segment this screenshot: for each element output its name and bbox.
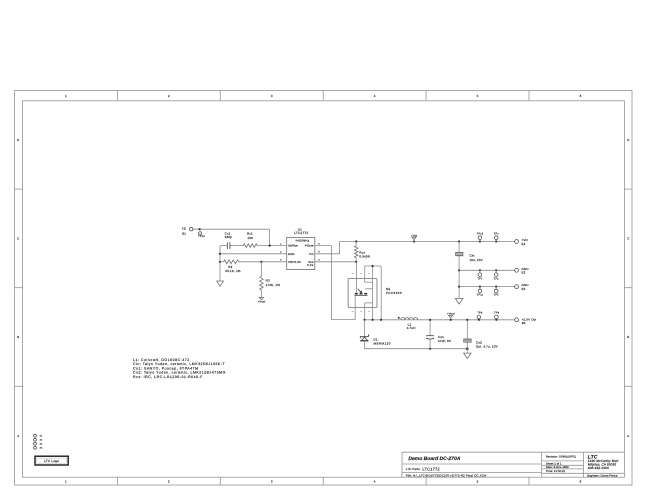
svg-text:TP11: TP11 (477, 294, 484, 297)
svg-text:Vin: Vin (309, 252, 314, 256)
svg-text:TP5: TP5 (494, 294, 500, 297)
svg-text:TP13: TP13 (477, 233, 484, 236)
svg-text:2: 2 (168, 479, 170, 483)
svg-text:TP9: TP9 (477, 312, 483, 315)
svg-text:TP2: TP2 (494, 277, 500, 280)
svg-text:408-432-1900: 408-432-1900 (588, 466, 609, 470)
svg-text:A: A (17, 434, 19, 438)
svg-text:2: 2 (368, 333, 369, 336)
svg-text:10K: 10K (247, 236, 253, 240)
svg-text:LTC Logo: LTC Logo (44, 459, 59, 463)
svg-text:A: A (627, 434, 629, 438)
svg-text:0.1V: 0.1V (307, 263, 313, 267)
svg-text:Ith/Run: Ith/Run (288, 244, 299, 248)
svg-text:FDC638P: FDC638P (386, 291, 402, 295)
svg-text:E4: E4 (522, 242, 526, 246)
svg-text:10u, 10V: 10u, 10V (469, 258, 482, 262)
svg-text:1: 1 (65, 479, 67, 483)
svg-text:PGate: PGate (305, 244, 314, 248)
svg-text:SD: SD (182, 227, 186, 231)
svg-text:0.040R: 0.040R (359, 254, 370, 258)
svg-text:3: 3 (271, 479, 273, 483)
svg-text:File: H:\_LTC\DCs\772\DC270-r: File: H:\_LTC\DCs\772\DC270-r2\772-R2 Fi… (406, 473, 487, 477)
svg-text:5: 5 (477, 479, 479, 483)
svg-text:f=550kHz: f=550kHz (296, 238, 310, 242)
svg-text:Rc1: Rc1 (247, 231, 253, 235)
svg-text:Vfb=0.8V: Vfb=0.8V (288, 260, 301, 264)
svg-text:6: 6 (580, 94, 582, 98)
svg-text:TP10: TP10 (198, 235, 205, 238)
svg-text:93.1K, 1%: 93.1K, 1% (225, 269, 241, 273)
svg-text:Engineer: Goran Perica: Engineer: Goran Perica (587, 475, 618, 478)
svg-text:Time: 13:30:22: Time: 13:30:22 (546, 470, 566, 473)
svg-text:+Vout: +Vout (447, 313, 455, 316)
svg-text:E5: E5 (522, 287, 526, 291)
svg-text:Revision: GP99108TR1: Revision: GP99108TR1 (546, 456, 577, 459)
svg-text:5: 5 (477, 94, 479, 98)
svg-text:Cin: Cin (469, 254, 474, 258)
svg-text:MBRM120: MBRM120 (374, 342, 391, 346)
svg-text:174K, 1%: 174K, 1% (266, 283, 281, 287)
svg-text:E6: E6 (522, 321, 526, 325)
svg-text:Opt. 4.7u, 10V: Opt. 4.7u, 10V (476, 345, 498, 349)
svg-text:TP7: TP7 (477, 277, 483, 280)
svg-text:6: 6 (580, 479, 582, 483)
svg-text:Date: 8-Nov-1999: Date: 8-Nov-1999 (546, 466, 569, 469)
svg-text:LTC1772: LTC1772 (422, 467, 440, 472)
svg-text:1: 1 (65, 94, 67, 98)
svg-text:Sheet 1 of 1: Sheet 1 of 1 (546, 463, 562, 466)
svg-text:+Vout: +Vout (258, 301, 266, 304)
svg-text:LTC Parts:: LTC Parts: (406, 467, 421, 471)
svg-text:Demo Board DC-270A: Demo Board DC-270A (408, 456, 460, 462)
svg-text:E3: E3 (522, 271, 526, 275)
svg-text:+Vin: +Vin (411, 235, 417, 238)
svg-text:220p: 220p (225, 235, 233, 239)
svg-text:2: 2 (168, 94, 170, 98)
svg-text:3: 3 (271, 94, 273, 98)
svg-text:Rcs: IRC, LRC-LR1206-01-R040-F: Rcs: IRC, LRC-LR1206-01-R040-F (133, 375, 203, 379)
svg-text:47uF, 6V: 47uF, 6V (438, 339, 451, 343)
svg-text:B: B (627, 335, 629, 339)
svg-text:TP4: TP4 (494, 312, 500, 315)
svg-text:LTC1772: LTC1772 (294, 231, 308, 235)
svg-text:B: B (17, 335, 19, 339)
svg-text:E1: E1 (182, 232, 186, 236)
svg-text:4.7uH: 4.7uH (407, 326, 416, 330)
svg-text:4: 4 (374, 94, 376, 98)
svg-text:TP1: TP1 (494, 233, 500, 236)
svg-text:GND: GND (288, 252, 295, 256)
svg-text:4: 4 (374, 479, 376, 483)
